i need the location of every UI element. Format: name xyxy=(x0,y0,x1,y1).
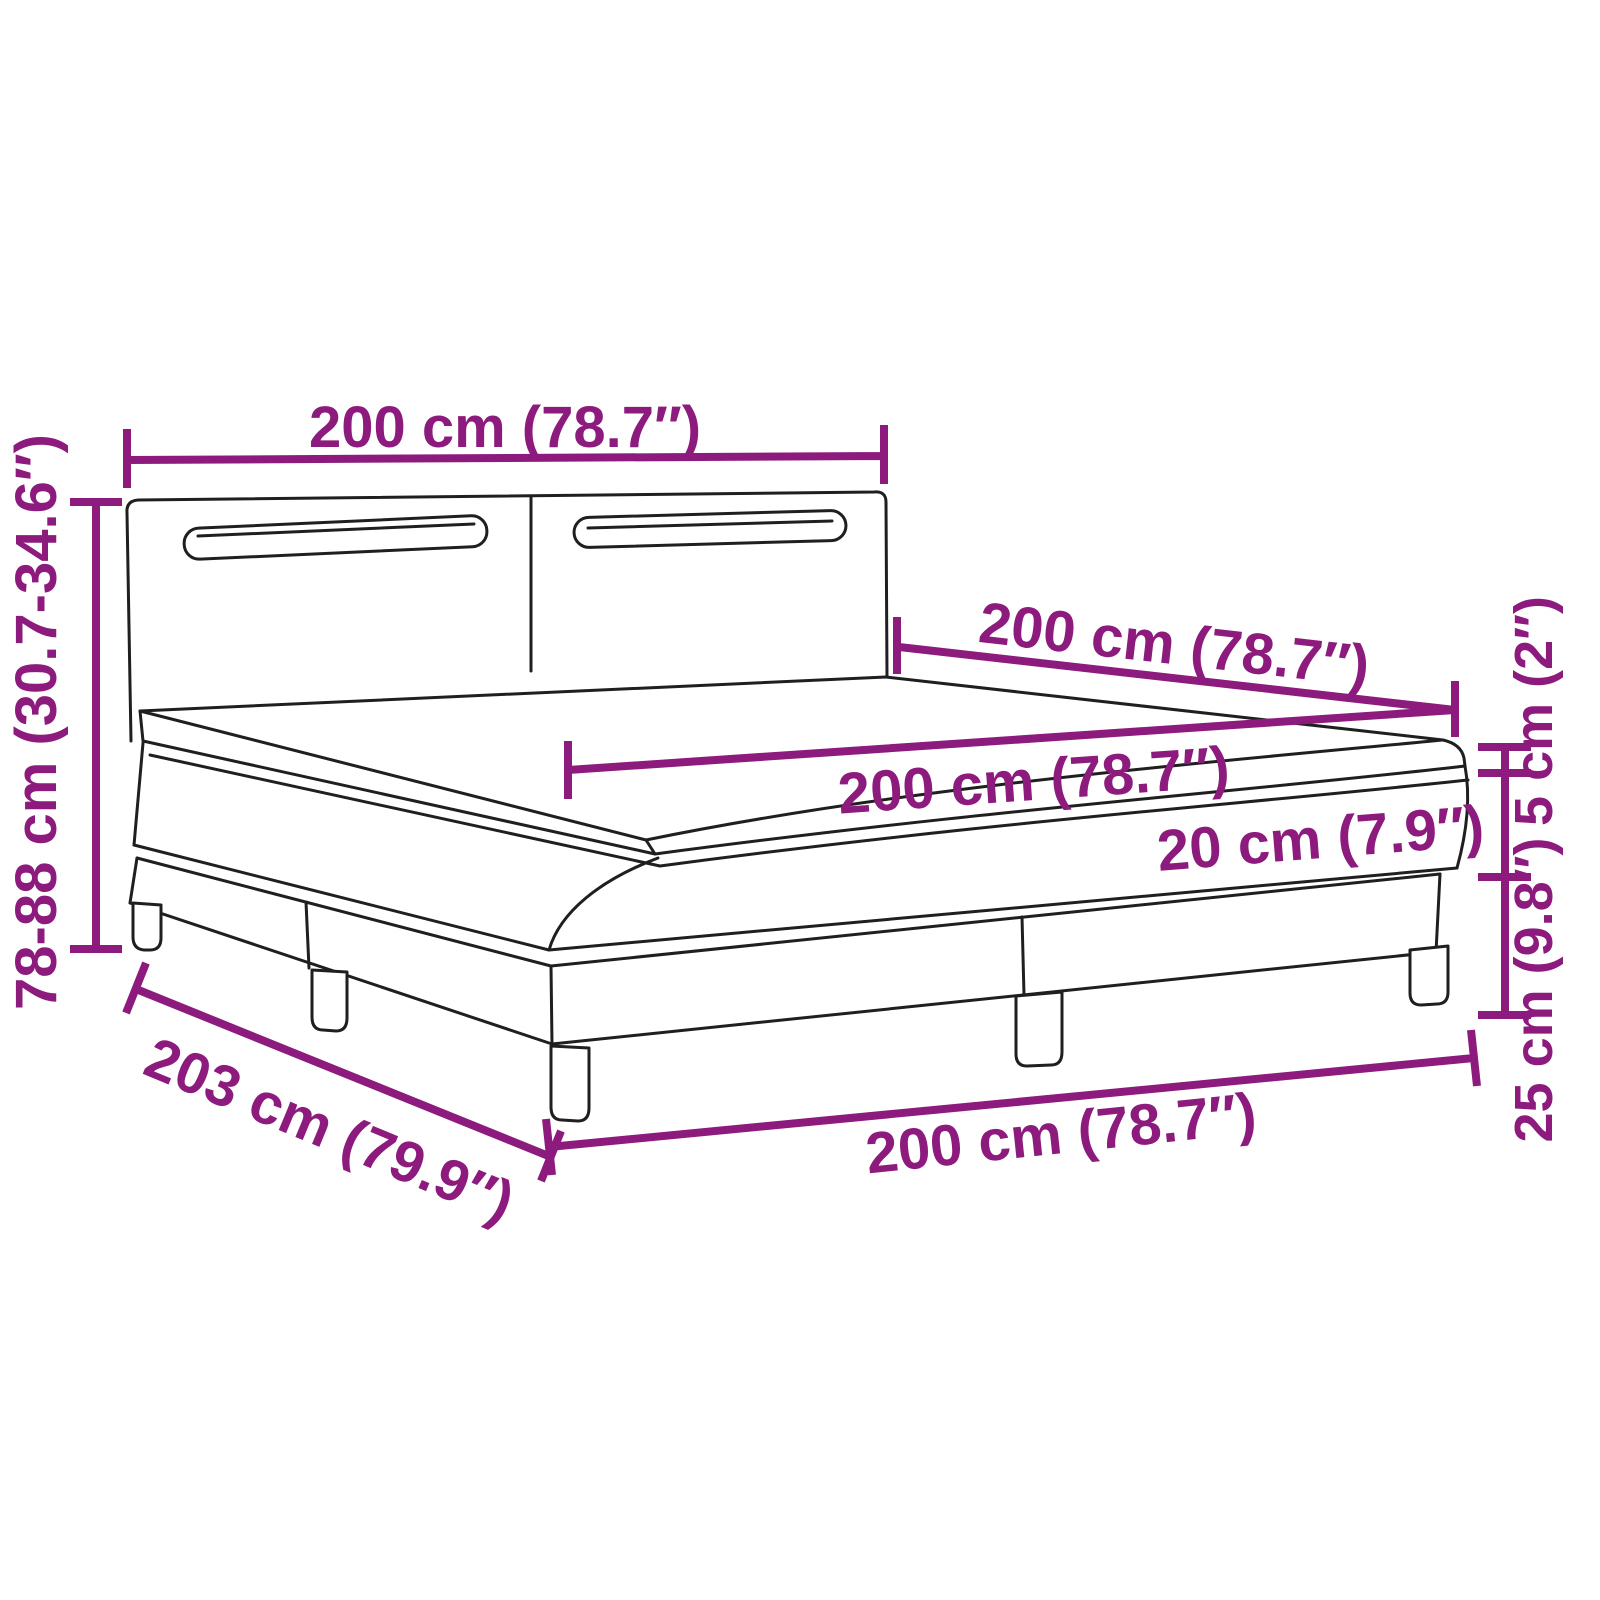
label-headboard-width: 200 cm (78.7″) xyxy=(309,395,701,460)
bed-leg-front-right xyxy=(1410,946,1448,1005)
bed-leg-front-corner xyxy=(551,1046,589,1121)
label-topper-thickness: 5 cm (2″) xyxy=(1504,596,1564,826)
box-top-left-edge xyxy=(137,858,551,966)
box-bottom-front-edge xyxy=(552,952,1436,1044)
box-seam-front xyxy=(1022,917,1024,995)
mattress-front-left-corner xyxy=(549,858,658,950)
mattress-bottom-left-edge xyxy=(134,845,549,950)
bed-leg-back-left xyxy=(133,903,161,950)
box-corner-edge xyxy=(551,966,552,1044)
label-total-height: 78-88 cm (30.7-34.6″) xyxy=(4,434,69,1010)
box-right-cap xyxy=(1436,874,1440,952)
bed-leg-front-mid xyxy=(1016,992,1062,1066)
box-left-cap xyxy=(130,858,137,903)
label-base-height: 25 cm (9.8″) xyxy=(1504,837,1564,1142)
bed-leg-mid-left xyxy=(312,970,347,1031)
box-seam-left xyxy=(306,902,309,968)
led-strip-right xyxy=(574,510,847,548)
led-strip-left xyxy=(183,515,487,560)
dim-line-total-height xyxy=(70,502,122,949)
mattress-bottom-front-edge xyxy=(549,868,1457,950)
bed-dimension-diagram: 200 cm (78.7″) 78-88 cm (30.7-34.6″) 200… xyxy=(0,0,1600,1600)
label-bed-length: 200 cm (78.7″) xyxy=(976,590,1373,699)
bed-drawing xyxy=(127,492,1468,1121)
label-frame-length: 203 cm (79.9″) xyxy=(136,1025,523,1235)
topper-right-corner xyxy=(1443,740,1465,766)
mattress-left-cap xyxy=(134,743,143,845)
box-top-front-edge xyxy=(551,874,1440,966)
